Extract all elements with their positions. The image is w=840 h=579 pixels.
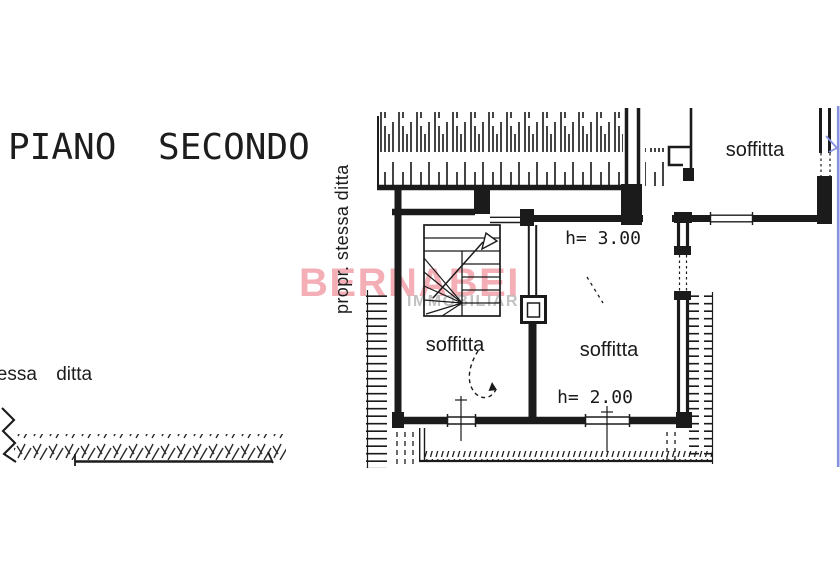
staircase xyxy=(424,225,500,316)
height-annotation-3m: h= 3.00 xyxy=(557,228,649,249)
room-partition-flue xyxy=(522,225,546,417)
wall-hatch-right xyxy=(689,292,713,464)
blue-annotation-line xyxy=(826,106,838,467)
floor-plan-page: BERNABEI IMMOBILIARE xyxy=(0,0,840,579)
vertical-property-note: propr. stessa ditta xyxy=(332,164,353,314)
roof-hatch-area xyxy=(377,112,667,188)
room-label-soffitta-top-right: soffitta xyxy=(705,139,805,162)
page-title: PIANO SECONDO xyxy=(8,127,310,168)
floor-plan-drawing xyxy=(0,0,840,579)
wall-hatch-left xyxy=(366,290,391,468)
room-label-soffitta-left: soffitta xyxy=(400,334,510,357)
left-property-note: stessa ditta xyxy=(0,364,92,386)
ground-line-hatch xyxy=(2,408,286,466)
room-label-soffitta-right: soffitta xyxy=(557,339,661,362)
height-annotation-2m: h= 2.00 xyxy=(549,387,641,408)
balcony xyxy=(419,428,712,462)
blue-arrow-icon xyxy=(826,136,837,152)
direction-arrow-dashed xyxy=(469,351,496,398)
